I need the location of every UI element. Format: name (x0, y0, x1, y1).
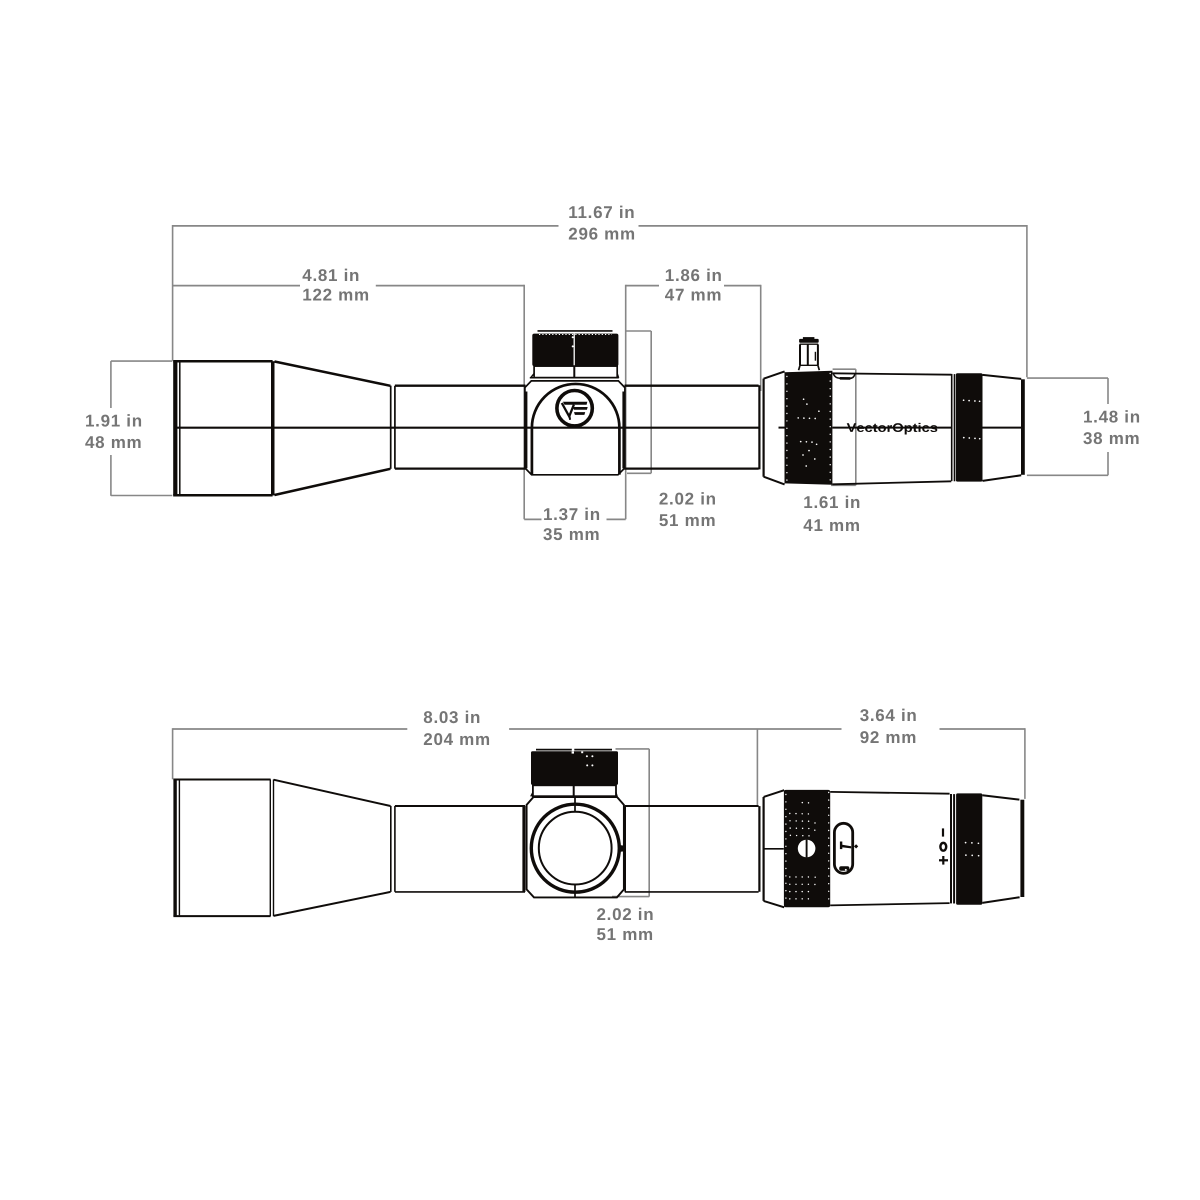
svg-text:4.81 in: 4.81 in (302, 266, 360, 285)
svg-text:41 mm: 41 mm (803, 516, 860, 535)
svg-text:1.48 in: 1.48 in (1083, 408, 1141, 427)
svg-text:1.61 in: 1.61 in (803, 493, 861, 512)
svg-text:122 mm: 122 mm (302, 286, 370, 305)
svg-text:2.02 in: 2.02 in (659, 490, 717, 509)
svg-text:1.91 in: 1.91 in (85, 411, 143, 430)
svg-text:1.86 in: 1.86 in (665, 266, 723, 285)
svg-text:38 mm: 38 mm (1083, 429, 1140, 448)
svg-text:11.67 in: 11.67 in (568, 203, 635, 222)
svg-text:47 mm: 47 mm (665, 286, 722, 305)
svg-text:8.03 in: 8.03 in (423, 708, 481, 727)
svg-text:92 mm: 92 mm (860, 728, 917, 747)
svg-text:296 mm: 296 mm (568, 224, 636, 243)
svg-text:35 mm: 35 mm (543, 525, 600, 544)
svg-text:51 mm: 51 mm (597, 925, 654, 944)
svg-text:51 mm: 51 mm (659, 511, 716, 530)
svg-text:48 mm: 48 mm (85, 433, 142, 452)
svg-text:2.02 in: 2.02 in (597, 905, 655, 924)
svg-text:1.37 in: 1.37 in (543, 505, 601, 524)
svg-text:204 mm: 204 mm (423, 730, 491, 749)
svg-text:3.64 in: 3.64 in (860, 706, 918, 725)
